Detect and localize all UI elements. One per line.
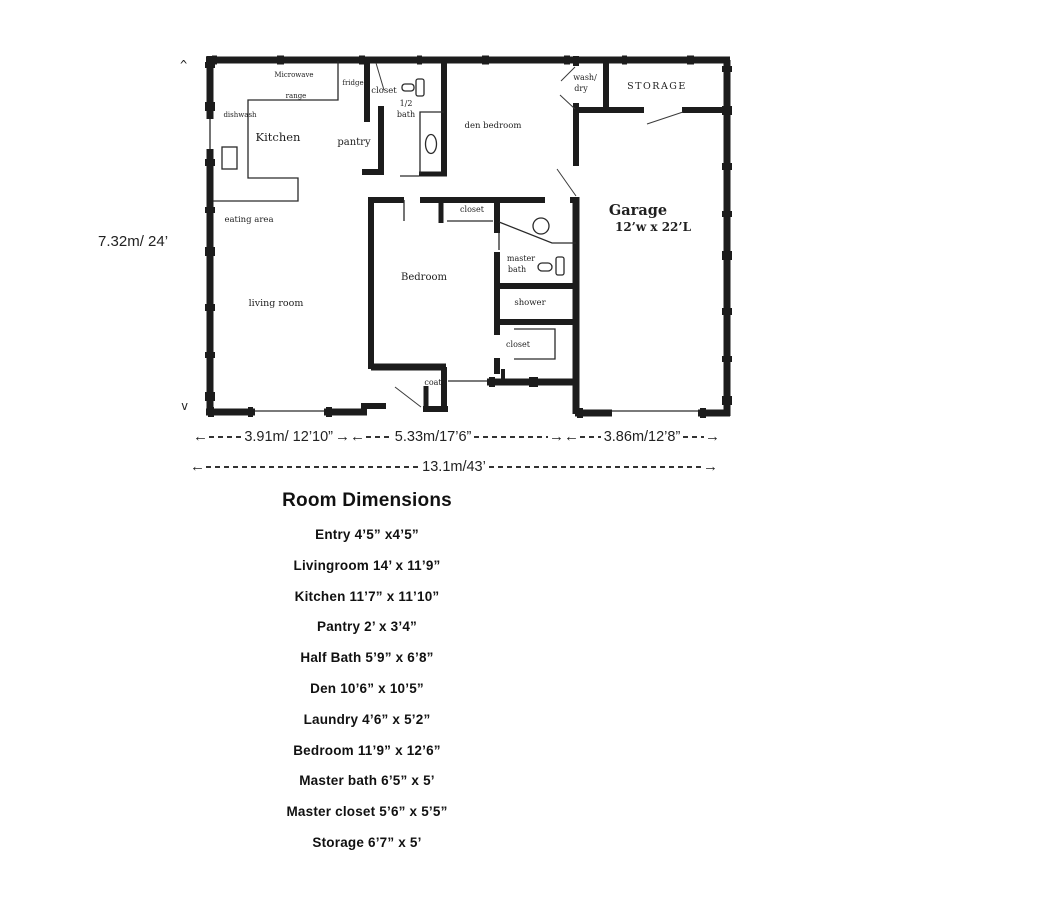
dash-line: [580, 436, 601, 438]
dimension-label: 13.1m/43’: [420, 459, 488, 475]
height-dimension-label: 7.32m/ 24’: [98, 233, 168, 250]
dash-line: [366, 436, 392, 438]
room-dimension-item-pantry: Pantry 2’ x 3’4”: [167, 612, 567, 643]
room-dimension-item-storage: Storage 6’7” x 5’: [167, 828, 567, 859]
room-dimension-item-masterbath: Master bath 6’5” x 5’: [167, 766, 567, 797]
shower-label: shower: [514, 298, 546, 308]
floor-plan-page: Microwave range dishwash Kitchen fridge …: [0, 0, 1038, 900]
pantry-label: pantry: [337, 137, 371, 148]
garage-label: Garage: [609, 202, 667, 219]
dash-line: [474, 436, 548, 438]
dimension-segment-garage: ← 3.86m/12’8” →: [564, 428, 720, 446]
master-closet-label: closet: [506, 340, 531, 349]
dash-line: [209, 436, 241, 438]
garage-door-swing: [557, 169, 576, 196]
masterbath-toilet-tank: [556, 257, 564, 275]
kitchen-label: Kitchen: [256, 130, 302, 144]
master-bath-label-1: master: [507, 254, 535, 263]
master-bath-label-2: bath: [508, 265, 526, 274]
room-dimension-item-mastercloset: Master closet 5’6” x 5’5”: [167, 797, 567, 828]
walls: [206, 56, 730, 416]
entry-door-swing: [395, 387, 421, 407]
hall-closet-label: closet: [371, 86, 397, 96]
coat-closet-label: coat: [424, 378, 442, 387]
height-marker-bottom: v: [181, 399, 188, 413]
room-dimension-item-bedroom: Bedroom 11’9” x 12’6”: [167, 736, 567, 767]
half-bath-label-1: 1/2: [400, 99, 413, 108]
halfbath-tub-basin: [426, 135, 437, 154]
dimension-label: 5.33m/17’6”: [393, 429, 474, 445]
storage-door-swing: [647, 112, 683, 124]
storage-label: STORAGE: [627, 81, 687, 92]
thin-lines: [210, 61, 698, 411]
bedroom-label: Bedroom: [401, 272, 447, 283]
eating-area-label: eating area: [224, 215, 273, 225]
width-dimension-row: ← 3.91m/ 12’10” → ← 5.33m/17’6” → ← 3.86…: [193, 428, 720, 446]
room-dimension-item-entry: Entry 4’5” x4’5”: [167, 520, 567, 551]
dash-line: [683, 436, 704, 438]
dimension-label: 3.91m/ 12’10”: [242, 429, 335, 445]
range-label: range: [286, 92, 307, 100]
dimension-label: 3.86m/12’8”: [602, 429, 683, 445]
bedroom-closet-label: closet: [460, 205, 485, 214]
kitchen-appliance: [222, 147, 237, 169]
living-room-label: living room: [249, 298, 304, 309]
door-swings: [376, 63, 683, 407]
arrow-left-icon: ←: [193, 428, 208, 446]
dimension-segment-total: ← 13.1m/43’ →: [190, 458, 718, 476]
half-bath-label-2: bath: [397, 110, 415, 119]
halfbath-tub: [420, 112, 444, 174]
halfbath-toilet-bowl: [402, 84, 414, 91]
fridge-label: fridge: [342, 79, 363, 87]
arrow-right-icon: →: [335, 428, 350, 446]
laundry-door-swing-2: [560, 95, 575, 109]
dash-line: [489, 466, 702, 468]
arrow-right-icon: →: [549, 428, 564, 446]
arrow-right-icon: →: [705, 428, 720, 446]
height-marker-top: ^: [180, 58, 187, 72]
total-width-dimension-row: ← 13.1m/43’ →: [190, 458, 718, 476]
wash-label: wash/: [573, 73, 597, 82]
room-dimension-item-livingroom: Livingroom 14’ x 11’9”: [167, 551, 567, 582]
plan-labels: Microwave range dishwash Kitchen fridge …: [223, 71, 691, 387]
room-dimension-item-laundry: Laundry 4’6” x 5’2”: [167, 705, 567, 736]
masterbath-toilet-bowl: [538, 263, 552, 271]
room-dimension-item-kitchen: Kitchen 11’7” x 11’10”: [167, 582, 567, 613]
arrow-right-icon: →: [703, 458, 718, 476]
microwave-label: Microwave: [274, 71, 313, 79]
dishwasher-label: dishwash: [223, 111, 257, 119]
garage-size-label: 12’w x 22’L: [615, 220, 692, 234]
dimension-segment-middle: ← 5.33m/17’6” →: [350, 428, 564, 446]
masterbath-sink: [533, 218, 549, 234]
room-dimensions-title: Room Dimensions: [167, 490, 567, 512]
room-dimension-item-den: Den 10’6” x 10’5”: [167, 674, 567, 705]
arrow-left-icon: ←: [564, 428, 579, 446]
den-bedroom-label: den bedroom: [465, 121, 522, 131]
dry-label: dry: [574, 84, 588, 93]
dash-line: [206, 466, 419, 468]
arrow-left-icon: ←: [350, 428, 365, 446]
dimension-segment-livingroom: ← 3.91m/ 12’10” →: [193, 428, 350, 446]
arrow-left-icon: ←: [190, 458, 205, 476]
room-dimensions-list: Room Dimensions Entry 4’5” x4’5” Livingr…: [167, 490, 567, 859]
wall-entry-jog: [364, 406, 386, 412]
halfbath-toilet-tank: [416, 79, 424, 96]
room-dimension-item-halfbath: Half Bath 5’9” x 6’8”: [167, 643, 567, 674]
